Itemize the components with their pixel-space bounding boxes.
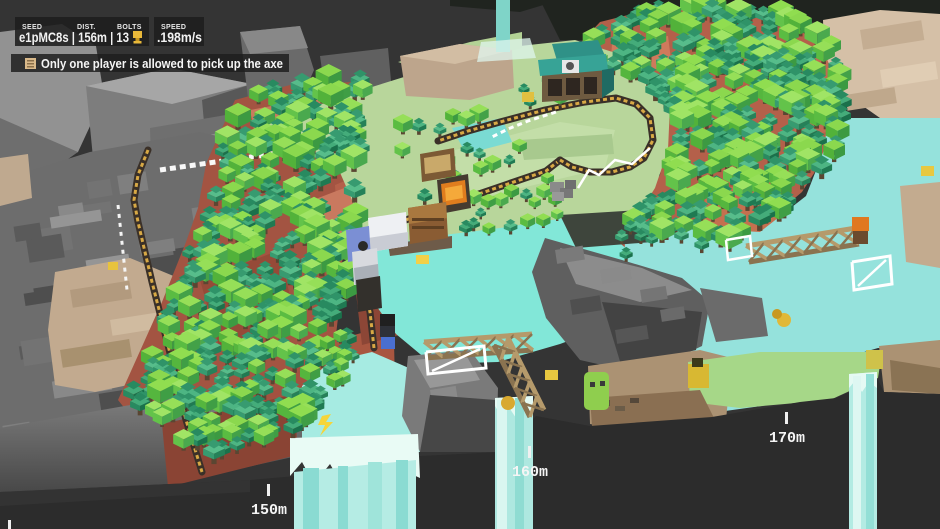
svg-text:Only one player is allowed to: Only one player is allowed to pick up th… (41, 56, 283, 71)
svg-text:e1pMC8s | 156m | 13: e1pMC8s | 156m | 13 (19, 29, 129, 45)
svg-text:150m: 150m (251, 502, 287, 519)
svg-text:160m: 160m (512, 464, 548, 481)
svg-text:170m: 170m (769, 430, 805, 447)
svg-text:.198m/s: .198m/s (157, 29, 202, 45)
